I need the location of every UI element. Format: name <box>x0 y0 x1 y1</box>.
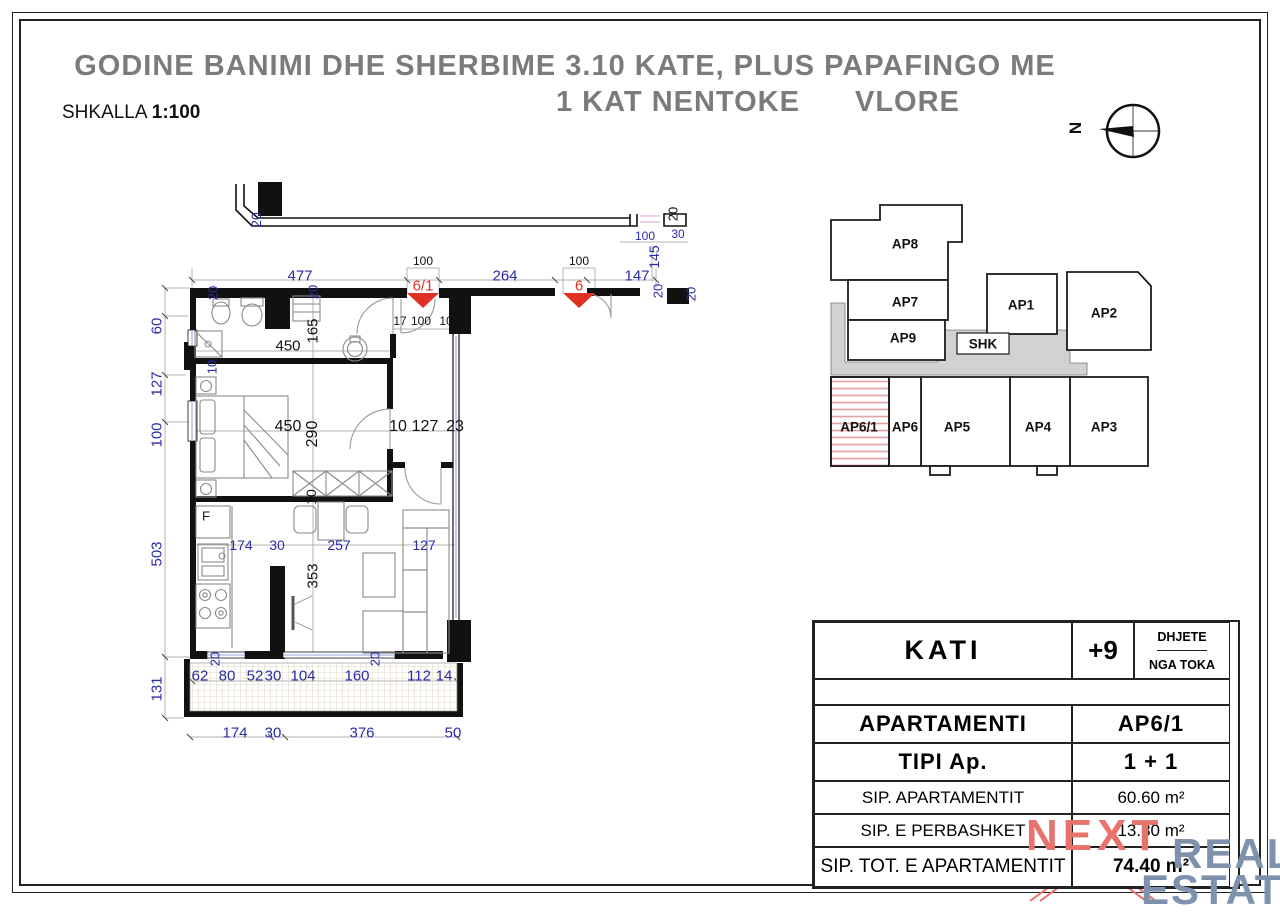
logo-estate-text: ESTATE <box>1141 866 1280 914</box>
keyplan-unit-label: AP3 <box>1091 420 1117 435</box>
apartamenti-value: AP6/1 <box>1072 705 1230 743</box>
kati-note-1: DHJETE <box>1157 623 1206 651</box>
keyplan-unit-label: AP6 <box>892 420 918 435</box>
kati-value: +9 <box>1072 622 1134 679</box>
sip-apartamentit-value: 60.60 m² <box>1072 781 1230 814</box>
kati-note-2: NGA TOKA <box>1149 651 1215 678</box>
empty-row <box>814 679 1230 705</box>
tipi-label: TIPI Ap. <box>814 743 1072 781</box>
keyplan-unit-label: AP2 <box>1091 306 1117 321</box>
keyplan-unit-label: AP1 <box>1008 298 1034 313</box>
keyplan-unit-label: AP9 <box>890 331 916 346</box>
tipi-value: 1 + 1 <box>1072 743 1230 781</box>
logo-next-text: NEXT <box>1026 811 1163 861</box>
keyplan-unit-label: SHK <box>969 337 998 352</box>
kati-label: KATI <box>814 622 1072 679</box>
keyplan-unit-label: AP8 <box>892 237 918 252</box>
sip-apartamentit-label: SIP. APARTAMENTIT <box>814 781 1072 814</box>
apartamenti-label: APARTAMENTI <box>814 705 1072 743</box>
kati-notes: DHJETE NGA TOKA <box>1134 622 1230 679</box>
keyplan-unit-label: AP4 <box>1025 420 1051 435</box>
north-label: N <box>1066 122 1086 134</box>
keyplan-unit-label: AP7 <box>892 295 918 310</box>
keyplan-unit-label: AP5 <box>944 420 970 435</box>
keyplan-unit-label: AP6/1 <box>840 420 878 435</box>
